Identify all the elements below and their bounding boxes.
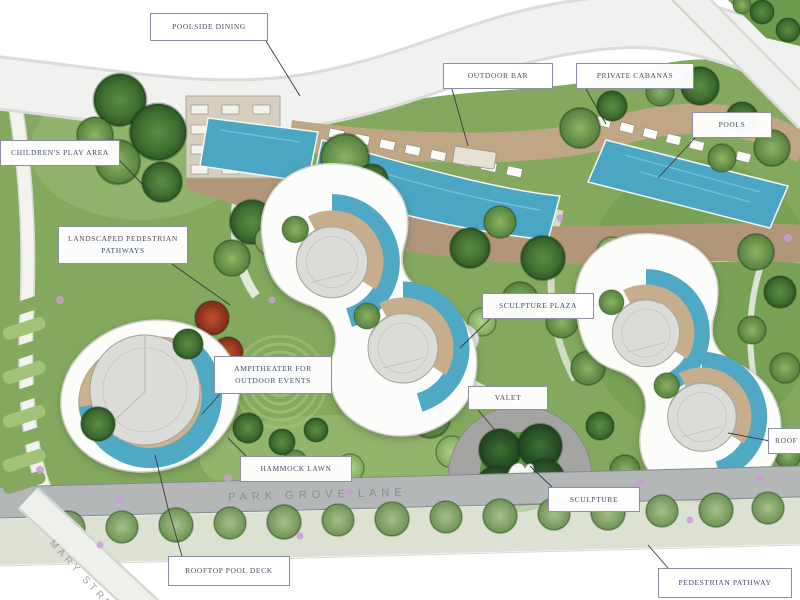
site-plan-rendering: POOLSIDE DINING OUTDOOR BAR PRIVATE CABA… <box>0 0 800 600</box>
site-plan-artwork <box>0 0 800 600</box>
label-rooftop-pool-deck: ROOFTOP POOL DECK <box>168 556 290 586</box>
label-hammock-lawn: HAMMOCK LAWN <box>240 456 352 482</box>
label-sculpture: SCULPTURE <box>548 487 640 512</box>
label-childrens-play-area: CHILDREN'S PLAY AREA <box>0 140 120 166</box>
label-outdoor-bar: OUTDOOR BAR <box>443 63 553 89</box>
label-poolside-dining: POOLSIDE DINING <box>150 13 268 41</box>
label-rooftop-clipped: ROOF <box>768 428 800 454</box>
label-private-cabanas: PRIVATE CABANAS <box>576 63 694 89</box>
label-valet: VALET <box>468 386 548 410</box>
label-landscaped-pedestrian-pathways: LANDSCAPED PEDESTRIAN PATHWAYS <box>58 226 188 264</box>
label-pedestrian-pathway: PEDESTRIAN PATHWAY <box>658 568 792 598</box>
label-pools: POOLS <box>692 112 772 138</box>
label-sculpture-plaza: SCULPTURE PLAZA <box>482 293 594 319</box>
label-ampitheater-for-outdoor-events: AMPITHEATER FOR OUTDOOR EVENTS <box>214 356 332 394</box>
